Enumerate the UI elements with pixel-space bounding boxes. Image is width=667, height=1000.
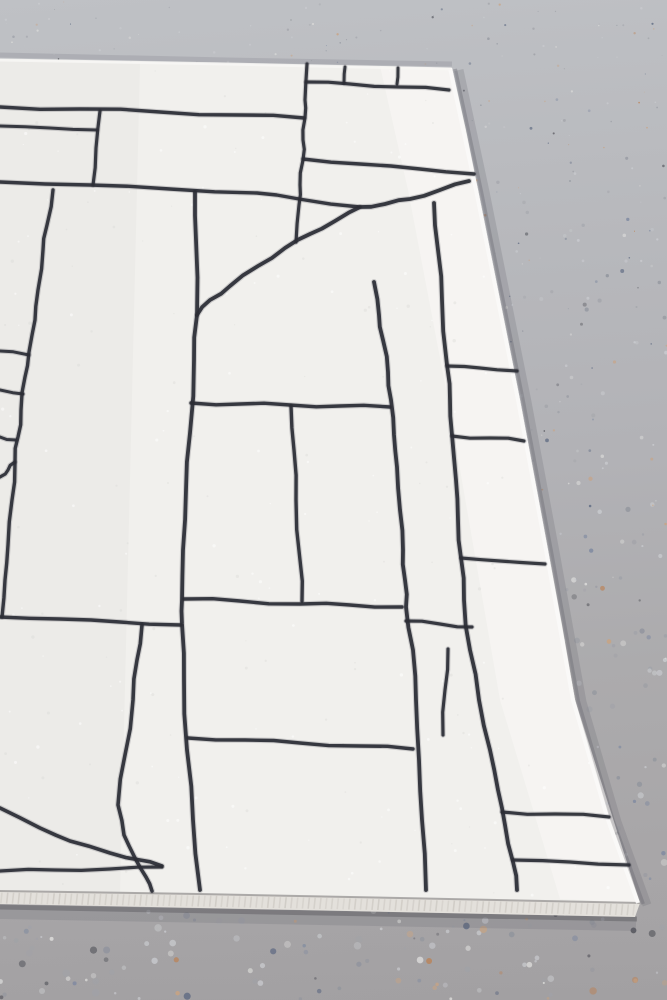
pattern-line-fuzz-ladder-rung-c: [0, 437, 16, 440]
rug: [0, 0, 667, 1000]
scene: [0, 0, 667, 1000]
pattern-line-fuzz-tick-1: [344, 67, 345, 83]
pattern-line-fuzz-tick-2: [397, 68, 398, 84]
